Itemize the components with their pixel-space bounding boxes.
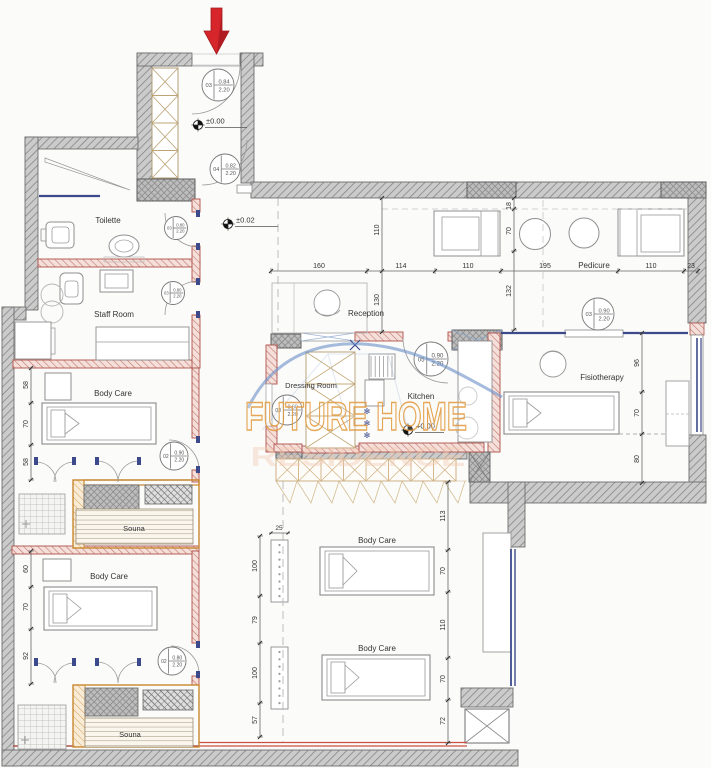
- svg-text:70: 70: [440, 675, 447, 683]
- svg-text:0.82: 0.82: [225, 164, 236, 170]
- svg-text:2.20: 2.20: [174, 458, 184, 464]
- svg-text:2.20: 2.20: [218, 87, 229, 93]
- svg-text:Body Care: Body Care: [94, 389, 132, 398]
- svg-text:±0.00: ±0.00: [206, 117, 225, 126]
- svg-text:92: 92: [23, 652, 30, 660]
- svg-text:18: 18: [506, 202, 513, 210]
- svg-text:70: 70: [506, 227, 513, 235]
- svg-text:113: 113: [440, 510, 447, 521]
- svg-text:2.20: 2.20: [172, 663, 182, 669]
- svg-text:FUTURE HOME: FUTURE HOME: [245, 395, 467, 439]
- svg-text:110: 110: [645, 263, 656, 270]
- svg-text:80: 80: [634, 455, 641, 463]
- svg-text:03: 03: [206, 83, 212, 89]
- svg-text:2.20: 2.20: [173, 294, 182, 299]
- svg-text:Reception: Reception: [348, 309, 384, 318]
- svg-text:Souna: Souna: [119, 730, 142, 739]
- svg-text:72: 72: [440, 717, 447, 725]
- svg-text:±0.02: ±0.02: [236, 216, 255, 225]
- svg-text:0.84: 0.84: [218, 80, 230, 86]
- svg-text:0.80: 0.80: [173, 288, 182, 293]
- svg-text:132: 132: [506, 285, 513, 297]
- svg-text:2.20: 2.20: [176, 229, 185, 234]
- svg-text:25: 25: [275, 525, 283, 532]
- svg-text:0.90: 0.90: [598, 309, 609, 315]
- svg-text:0.80: 0.80: [172, 656, 182, 662]
- svg-text:03: 03: [164, 291, 169, 296]
- svg-text:RESIDENCE: RESIDENCE: [251, 441, 466, 472]
- svg-text:114: 114: [395, 263, 406, 270]
- svg-text:100: 100: [252, 560, 259, 572]
- svg-text:70: 70: [440, 567, 447, 575]
- svg-text:0.80: 0.80: [176, 223, 185, 228]
- svg-text:Staff Room: Staff Room: [94, 310, 134, 319]
- svg-text:Fisiotherapy: Fisiotherapy: [580, 373, 624, 382]
- svg-text:03: 03: [167, 226, 172, 231]
- svg-text:Toilette: Toilette: [95, 216, 121, 225]
- svg-text:23: 23: [687, 263, 695, 270]
- svg-text:130: 130: [374, 294, 381, 306]
- svg-text:160: 160: [313, 263, 325, 270]
- svg-text:70: 70: [23, 420, 30, 428]
- svg-text:110: 110: [374, 224, 381, 235]
- svg-text:Body Care: Body Care: [358, 536, 396, 545]
- svg-text:Body Care: Body Care: [90, 572, 128, 581]
- svg-text:70: 70: [23, 603, 30, 611]
- svg-text:03: 03: [586, 312, 592, 318]
- svg-text:Pedicure: Pedicure: [578, 261, 610, 270]
- svg-text:58: 58: [23, 381, 30, 389]
- svg-text:96: 96: [634, 359, 641, 367]
- svg-text:Dressing Room: Dressing Room: [285, 381, 337, 390]
- svg-text:70: 70: [634, 409, 641, 417]
- svg-text:195: 195: [539, 263, 551, 270]
- svg-text:110: 110: [440, 619, 447, 630]
- svg-text:02: 02: [161, 659, 167, 665]
- svg-text:Souna: Souna: [123, 524, 146, 533]
- svg-text:02: 02: [163, 454, 169, 460]
- svg-text:0.90: 0.90: [174, 451, 184, 457]
- svg-text:2.20: 2.20: [225, 171, 236, 177]
- svg-text:60: 60: [23, 565, 30, 573]
- svg-text:0.90: 0.90: [432, 353, 444, 360]
- svg-text:110: 110: [462, 263, 473, 270]
- svg-text:Body Care: Body Care: [358, 644, 396, 653]
- svg-text:100: 100: [252, 667, 259, 679]
- svg-text:58: 58: [23, 458, 30, 466]
- svg-text:2.20: 2.20: [598, 316, 609, 322]
- svg-text:04: 04: [213, 167, 219, 173]
- svg-text:57: 57: [252, 716, 259, 724]
- svg-text:79: 79: [252, 616, 259, 624]
